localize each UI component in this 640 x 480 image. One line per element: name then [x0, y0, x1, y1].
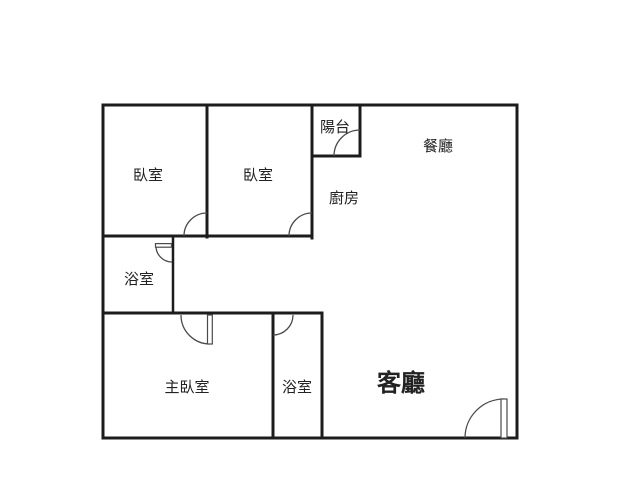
master-bedroom-label: 主臥室 — [164, 378, 209, 396]
floorplan-canvas: 臥室臥室陽台餐廳廚房浴室主臥室浴室客廳 — [0, 0, 640, 480]
bedroom-1-label: 臥室 — [133, 166, 163, 184]
bathroom2-door-swing-arc — [273, 315, 293, 335]
living-room-label: 客廳 — [377, 369, 425, 397]
bedroom1-door-swing-arc — [184, 213, 207, 236]
bathroom1-door-leaf — [156, 244, 172, 248]
bathroom-1-label: 浴室 — [124, 270, 154, 288]
bedroom2-door-swing-arc — [289, 213, 312, 236]
balcony-label: 陽台 — [320, 118, 350, 136]
kitchen-label: 廚房 — [329, 189, 359, 207]
floor-plan-svg: 臥室臥室陽台餐廳廚房浴室主臥室浴室客廳 — [0, 0, 640, 480]
bathroom1-door-swing-arc — [156, 246, 172, 262]
bathroom-2-label: 浴室 — [282, 378, 312, 396]
master-bedroom-door-swing-arc — [181, 315, 210, 344]
dining-room-label: 餐廳 — [423, 137, 453, 155]
entry-door-leaf — [501, 399, 507, 438]
master-bedroom-door-leaf — [208, 315, 213, 344]
entry-door-swing-arc — [465, 399, 504, 438]
bedroom-2-label: 臥室 — [243, 166, 273, 184]
